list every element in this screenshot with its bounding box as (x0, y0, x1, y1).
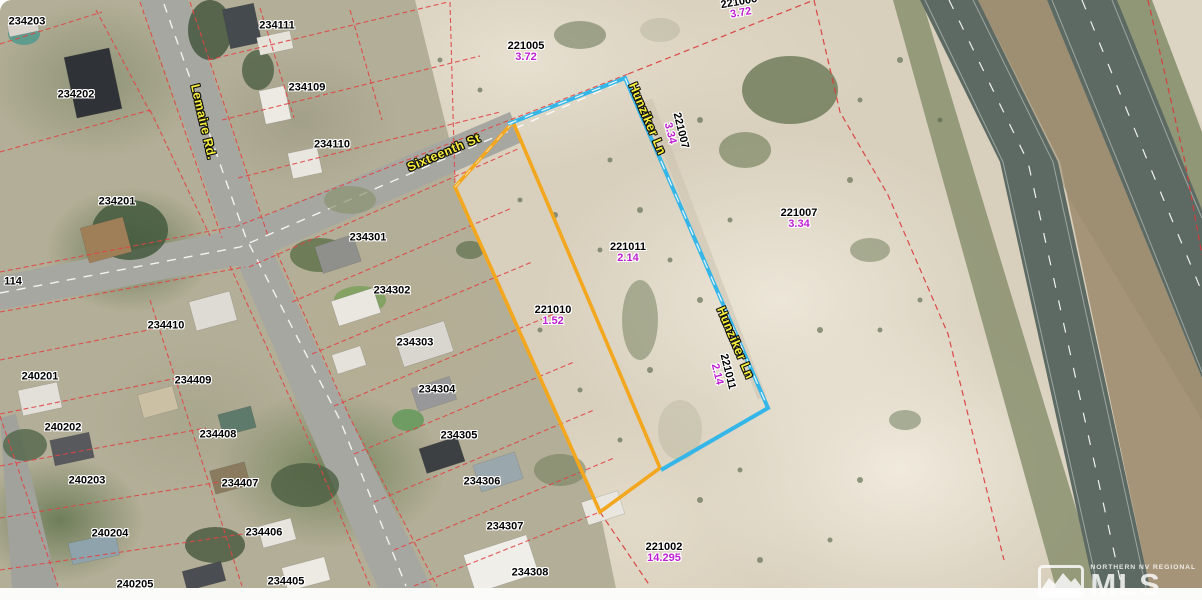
aerial-map-canvas: 234203 234111 234202 234109 234110 23420… (0, 0, 1202, 588)
parcel-map-screenshot: 234203 234111 234202 234109 234110 23420… (0, 0, 1202, 600)
map-graphics (0, 0, 1202, 588)
bottom-margin (0, 588, 1202, 600)
